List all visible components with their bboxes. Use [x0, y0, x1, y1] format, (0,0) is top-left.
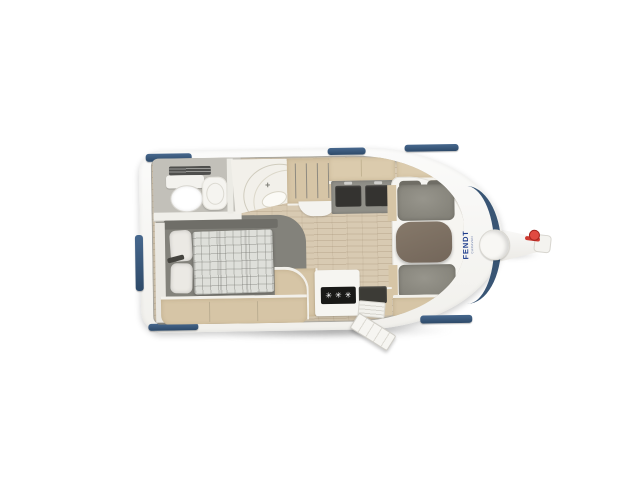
burner-icon: ✳: [345, 291, 352, 299]
caravan-interior: +: [151, 154, 466, 325]
kitchen-worktop: [331, 180, 394, 214]
corner-shower: [229, 158, 296, 217]
locker-seam: [361, 159, 362, 176]
burner-icon: ✳: [325, 291, 332, 299]
roof-vent-icon: [169, 166, 211, 176]
clothes-hanger-icon: [306, 163, 308, 198]
floor-plan-stage: +: [0, 0, 640, 480]
roof-window-mid: [328, 147, 366, 155]
bin-handle: [344, 182, 352, 185]
plaid-blanket: [192, 229, 274, 295]
washbasin-cabinet: [202, 177, 228, 210]
bin-handle: [374, 181, 382, 184]
three-burner-hob-icon: ✳ ✳ ✳: [321, 287, 356, 305]
clothes-hanger-icon: [295, 164, 297, 199]
pillow: [170, 263, 193, 293]
bed-frame: [161, 294, 307, 324]
brand-logo-text: FENDT: [462, 223, 470, 267]
caravan-floor-plan: +: [0, 0, 640, 480]
bed-frame-seam: [257, 301, 258, 321]
storage-bin: [335, 186, 361, 207]
brand-logo: FENDT CARAVAN: [462, 223, 479, 267]
rear-side-window: [135, 235, 144, 291]
washbasin-bowl: [206, 183, 224, 205]
washbasin-tap-icon: +: [265, 181, 270, 190]
dinette-bench-rear: [397, 184, 455, 221]
burner-icon: ✳: [335, 291, 342, 299]
dinette-seat-base: [391, 176, 465, 313]
kitchen-hob-unit: ✳ ✳ ✳: [314, 270, 360, 317]
clothes-hanger-icon: [317, 163, 319, 198]
bed-headboard: [164, 219, 278, 230]
bench-wood-trim: [387, 185, 397, 221]
front-bench-wood-base: [393, 294, 459, 317]
roof-window-front: [405, 144, 459, 152]
bed-frame-seam: [209, 302, 210, 322]
brand-logo-subtext: CARAVAN: [470, 223, 474, 267]
locker-seam: [429, 157, 430, 174]
dinette-table: [396, 221, 453, 263]
